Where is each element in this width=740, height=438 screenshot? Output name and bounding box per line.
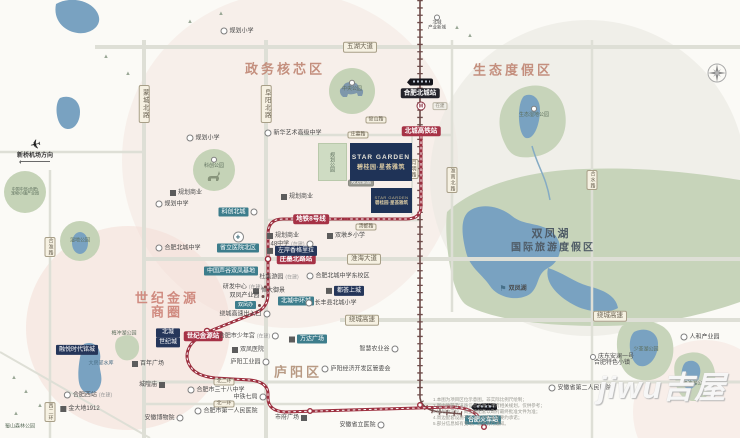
tree-icon: ▲ bbox=[218, 11, 224, 17]
road-badge-hehuai: 合淮路 bbox=[45, 237, 56, 257]
park-shidi-label: 生态湿地公园 bbox=[519, 113, 549, 119]
planned-park-label: 规划公园 bbox=[329, 152, 336, 172]
industry-icon bbox=[680, 334, 687, 341]
direction-arrow-icon bbox=[20, 161, 50, 162]
poi-xinhua-yishu: 新华艺术高级中学 bbox=[264, 130, 321, 137]
company-icon bbox=[260, 394, 267, 401]
facility-shengliyiyuan: + 省立医院北区 bbox=[217, 232, 259, 253]
poi-guihua-shangye-1: 规划商业 bbox=[170, 190, 202, 196]
poi-yanfa-zhongxin: 研发中心 (在建) bbox=[223, 284, 267, 291]
tree-icon: ▲ bbox=[103, 54, 109, 60]
dot-icon bbox=[264, 286, 267, 289]
school-icon bbox=[187, 387, 194, 394]
facility-shenggu: 中国声谷双凤基地 bbox=[204, 267, 258, 276]
hospital-icon bbox=[378, 422, 385, 429]
school-icon bbox=[305, 300, 312, 307]
tree-icon: ▲ bbox=[187, 19, 193, 25]
school-icon bbox=[264, 130, 271, 137]
poi-beicheng-zhongxue: 合肥北城中学 bbox=[155, 245, 200, 252]
park-meichong-label: 梅冲湖公园 bbox=[111, 331, 136, 337]
poi-luyang-gongyeyuan: 庐阳工业园 bbox=[230, 359, 269, 366]
disclaimer-line: 5.部分信息如有变动，恕不另行通知。 bbox=[433, 421, 651, 427]
building-icon bbox=[326, 288, 332, 294]
dot-icon bbox=[258, 304, 261, 307]
poi-shaoniangong: 合肥市少年宫 (在建) bbox=[219, 333, 279, 340]
project-name-cn: 碧桂园·星荟雅筑 bbox=[357, 162, 405, 171]
project-block-second: STAR GARDEN 碧桂园·星荟雅筑 bbox=[371, 188, 412, 213]
government-icon bbox=[321, 366, 328, 373]
lake-shuangfenghu-label: 双凤湖 bbox=[509, 286, 527, 292]
poi-hefei-xizhan: 合肥西站 (在建) bbox=[64, 392, 112, 399]
road-badge-xi2: 西二环 bbox=[45, 402, 56, 422]
poi-38-zhongxue: 合肥市三十八中学 bbox=[187, 387, 244, 394]
museum-icon bbox=[177, 415, 184, 422]
poi-duji-youyuan: 杜集游园 (在建) bbox=[259, 274, 298, 281]
hospital-icon bbox=[548, 385, 555, 392]
rail-icon bbox=[64, 392, 71, 399]
watermark: jiwu吉屋 bbox=[598, 362, 726, 407]
poi-jindadi-1912: 金大地1912 bbox=[60, 406, 99, 412]
poi-diyi-renmin-yiyuan: 合肥市第一人民医院 bbox=[194, 408, 257, 415]
facility-wanda: 万达广场 bbox=[289, 335, 327, 344]
tree-icon: ▲ bbox=[37, 403, 43, 409]
park-pet-town: 中国中部(合肥) 宠物小镇产业园 bbox=[11, 188, 39, 197]
park-zhongyang-label: 中央公园 bbox=[342, 87, 362, 93]
road-badge-wuhu: 五湖大道 bbox=[343, 42, 377, 53]
road-badge-bei2: 北二环 bbox=[213, 379, 234, 386]
poi-chenghuangmiao: 城隍庙 bbox=[139, 382, 165, 388]
industry-icon bbox=[263, 359, 270, 366]
train-icon bbox=[407, 79, 433, 86]
tree-icon: ▲ bbox=[13, 411, 19, 417]
under-construction-tag: 在建 bbox=[433, 102, 448, 110]
plaza-icon bbox=[301, 415, 307, 421]
airplane-icon: ✈ bbox=[28, 137, 41, 152]
road-badge-heshui: 合水路 bbox=[587, 170, 598, 190]
commerce-icon bbox=[281, 194, 287, 200]
interchange-icon bbox=[264, 311, 271, 318]
poi-zhongtie-qiju: 中铁七局 bbox=[233, 394, 266, 401]
poi-luyang-jingkaiqu: 庐阳经济开发区管委会 bbox=[321, 366, 390, 373]
poi-guihua-xiaoxue-1: 规划小学 bbox=[220, 28, 253, 35]
school-icon bbox=[327, 233, 333, 239]
school-icon bbox=[307, 241, 314, 248]
road-badge-raocheng-1: 绕城高速 bbox=[345, 315, 379, 326]
poi-48-zhongxue: 48中学 (在建) bbox=[270, 241, 313, 248]
zone-title-sjjy-2: 商圈 bbox=[151, 302, 183, 321]
estate-duhui-label: 都荟上城 bbox=[334, 286, 364, 296]
park-shaoquan-label: 少荃湖公园 bbox=[633, 347, 658, 353]
airport-direction-label: 新桥机场方向 bbox=[17, 153, 53, 159]
road-badge-bei1: 北一环 bbox=[213, 401, 234, 408]
tree-icon: ▲ bbox=[454, 25, 460, 31]
poi-guihua-shangye-2: 规划商业 bbox=[281, 194, 313, 200]
road-badge-zhuangmu: 庄墓路 bbox=[347, 132, 368, 139]
estate-duhui: 都荟上城 bbox=[326, 286, 364, 296]
poi-circle-icon bbox=[251, 209, 258, 216]
estate-bcsjc-line2: 世纪城 bbox=[156, 338, 180, 348]
poi-shengli-yiyuan: 安徽省立医院 bbox=[339, 422, 384, 429]
road-badge-huaihai: 淮海大道 bbox=[347, 254, 381, 265]
lake-dafangying-label: 大房郢水库 bbox=[88, 361, 113, 367]
tree-icon: ▲ bbox=[467, 33, 473, 39]
poi-guihua-zhongxue: 规划中学 bbox=[155, 201, 188, 208]
school-icon bbox=[220, 28, 227, 35]
mall-icon bbox=[289, 336, 295, 342]
school-icon bbox=[306, 273, 313, 280]
poi-changfeng-xiaoxue: 长丰县北城小学 bbox=[305, 300, 356, 307]
estate-beicheng-shijicheng: 北城 世纪城 bbox=[156, 328, 180, 347]
tree-icon: ▲ bbox=[23, 389, 29, 395]
park-kechuang-label: 科创公园 bbox=[204, 164, 224, 170]
facility-kcbc-label: 科创北城 bbox=[218, 208, 248, 217]
poi-zhihui-nongyegu: 智慧农业谷 bbox=[359, 346, 398, 353]
poi-shuangfeng-chanyeyuan: 双凤产业园 bbox=[229, 293, 264, 299]
zone-title-zhengwu: 政务核芯区 bbox=[245, 59, 325, 78]
poi-shifu-guangchang: 市府广场 bbox=[275, 415, 307, 421]
tree-icon: ▲ bbox=[11, 375, 17, 381]
road-badge-tangdu: 汤都路 bbox=[355, 224, 376, 231]
metro-line8-label: 地铁8号线 – – ▸ bbox=[293, 214, 349, 224]
airport-direction: ✈ 新桥机场方向 bbox=[17, 138, 53, 162]
school-icon bbox=[155, 245, 162, 252]
poi-chanye-xincheng: 北城 产业新城 bbox=[428, 15, 446, 30]
project-name-cn-2: 碧桂园·星荟雅筑 bbox=[375, 200, 408, 206]
hospital-icon bbox=[232, 347, 238, 353]
poi-shuangfengban: 双凤办 bbox=[235, 301, 261, 309]
park-zhongyang: 中央公园 bbox=[342, 80, 362, 93]
dot-icon bbox=[262, 295, 265, 298]
planned-park-block: 规划公园 bbox=[318, 143, 347, 181]
commerce-icon bbox=[60, 406, 66, 412]
hospital-icon bbox=[194, 408, 201, 415]
metro-logo-icon: M bbox=[417, 102, 426, 111]
school-icon bbox=[155, 201, 162, 208]
commerce-icon bbox=[170, 190, 176, 196]
pet-town-line2: 宠物小镇产业园 bbox=[11, 192, 39, 196]
metro-line8-badge: 地铁8号线 bbox=[293, 214, 329, 224]
park-shushan-label: 蜀山森林公园 bbox=[5, 424, 35, 430]
road-badge-huainan: 淮南北路 bbox=[447, 167, 458, 193]
compass-icon bbox=[708, 64, 726, 82]
lake-shuangfenghu: ⚑ 双凤湖 bbox=[499, 285, 526, 293]
poi-renhe-chanyeyuan: 人和产业园 bbox=[680, 334, 719, 341]
metro-line8-arrow-icon: – – ▸ bbox=[331, 216, 349, 223]
poi-shuangdun-xiaoxue: 双墩乡小学 bbox=[327, 233, 365, 239]
agriculture-icon bbox=[392, 346, 399, 353]
hospital-cross-icon: + bbox=[232, 232, 243, 243]
zone-title-sfh-2: 国际旅游度假区 bbox=[511, 239, 595, 254]
park-shidi: 生态湿地公园 bbox=[519, 106, 549, 119]
poi-bainian-guangchang: 百年广场 bbox=[132, 361, 164, 367]
poi-beicheng-zhongxue-dong: 合肥北城中学东校区 bbox=[306, 273, 369, 280]
poi-guihua-shangye-3: 规划商业 bbox=[267, 233, 299, 239]
school-icon bbox=[186, 135, 193, 142]
facility-wanda-label: 万达广场 bbox=[297, 335, 327, 344]
flag-icon: ⚑ bbox=[499, 285, 506, 293]
station-badge-hefei-beicheng: 合肥北城站 bbox=[401, 88, 440, 98]
zone-title-shengtai: 生态度假区 bbox=[473, 60, 553, 79]
poi-guihua-xiaoxue-2: 规划小学 bbox=[186, 135, 219, 142]
project-name-en: STAR GARDEN bbox=[352, 154, 410, 161]
commerce-icon bbox=[267, 233, 273, 239]
road-badge-raocheng-2: 绕城高速 bbox=[593, 311, 627, 322]
park-kechuang: 科创公园 bbox=[204, 157, 224, 170]
road-badge-fuyang: 阜阳北路 bbox=[261, 85, 272, 123]
market-icon bbox=[159, 382, 165, 388]
poi-anhui-bowuyuan: 安徽博物院 bbox=[144, 415, 183, 422]
park-shidi2-label: 湿地公园 bbox=[70, 238, 90, 244]
poi-raocheng-chukou: 绕城高速出入口 bbox=[219, 311, 270, 318]
facility-kechuang-beicheng: 科创北城 bbox=[218, 208, 257, 217]
station-badge-beicheng-gaotie: 北城高铁站 bbox=[402, 126, 441, 136]
poi-shuangfeng-yiyuan: 双凤医院 bbox=[232, 347, 264, 353]
facility-slyy-label: 省立医院北区 bbox=[217, 244, 259, 253]
project-block-main: STAR GARDEN 碧桂园·星荟雅筑 bbox=[350, 143, 412, 181]
tree-icon: ▲ bbox=[125, 71, 131, 77]
station-badge-shijijinyuan: 世纪金源站 bbox=[184, 331, 223, 341]
building-icon bbox=[267, 248, 273, 254]
estate-bcsjc-line1: 北城 bbox=[156, 328, 180, 337]
map-canvas: ▲ ▲ ▲ ▲ ▲ ▲ ▲ ▲ ▲ ▲ 政务核芯区 生态度假区 世纪金源 商圈 … bbox=[0, 0, 740, 438]
zone-title-luyang: 庐阳区 bbox=[274, 362, 322, 381]
estate-rongyue: 融悦时代铭城 bbox=[56, 345, 98, 355]
road-badge-mengcheng: 蒙城北路 bbox=[139, 85, 150, 123]
youth-palace-icon bbox=[272, 333, 279, 340]
road-badge-junshan: 俊山路 bbox=[365, 117, 386, 124]
plaza-icon bbox=[132, 361, 138, 367]
